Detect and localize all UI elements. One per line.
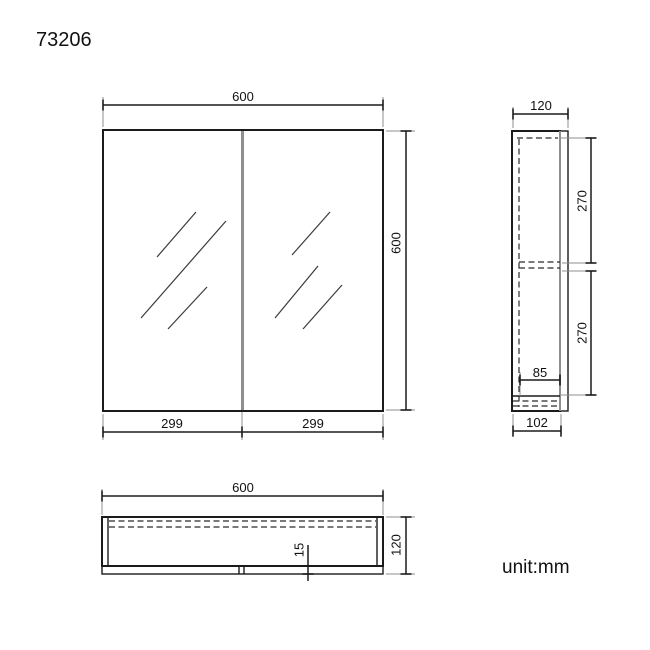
bottom-depth-dimension: 120 [386, 517, 415, 574]
bottom-door-strip [102, 566, 383, 574]
front-view: 600 600 299 299 [103, 89, 415, 440]
bottom-door-thickness-dimension: 15 [292, 543, 314, 581]
dimension-label: 120 [530, 98, 552, 113]
drawing-canvas: 73206 600 [0, 0, 650, 650]
mirror-reflection-line [292, 212, 330, 255]
dimension-label: 120 [389, 534, 404, 556]
front-door-width-dimensions: 299 299 [103, 412, 383, 440]
dimension-label: 299 [161, 416, 183, 431]
dimension-label: 299 [302, 416, 324, 431]
side-depth-dimension: 120 [513, 98, 568, 128]
side-view: 120 270 270 85 [512, 98, 597, 437]
dimension-label: 85 [533, 365, 547, 380]
side-lower-section-dimension: 270 [560, 271, 597, 395]
technical-drawing-page: 73206 600 [0, 0, 650, 650]
dimension-label: 600 [232, 89, 254, 104]
dimension-label: 600 [232, 480, 254, 495]
drawing-number: 73206 [36, 29, 92, 51]
side-carcass-depth-dimension: 102 [513, 414, 561, 437]
side-interior-depth-dimension: 85 [520, 365, 560, 396]
front-height-dimension: 600 [386, 131, 415, 410]
bottom-carcass-outline [102, 517, 383, 566]
front-width-dimension: 600 [103, 89, 383, 127]
unit-note: unit:mm [502, 557, 570, 578]
mirror-reflection-line [275, 266, 318, 318]
right-door-mirror-reflections [275, 212, 342, 329]
dimension-label: 15 [292, 543, 307, 557]
dimension-label: 270 [575, 322, 590, 344]
mirror-reflection-line [157, 212, 196, 257]
bottom-view: 600 15 120 [102, 480, 415, 581]
bottom-width-dimension: 600 [102, 480, 383, 515]
side-upper-section-dimension: 270 [560, 138, 597, 263]
mirror-reflection-line [141, 221, 226, 318]
left-door-mirror-reflections [141, 212, 226, 329]
dimension-label: 270 [575, 190, 590, 212]
mirror-reflection-line [303, 285, 342, 329]
mirror-reflection-line [168, 287, 207, 329]
dimension-label: 102 [526, 415, 548, 430]
dimension-label: 600 [389, 232, 404, 254]
